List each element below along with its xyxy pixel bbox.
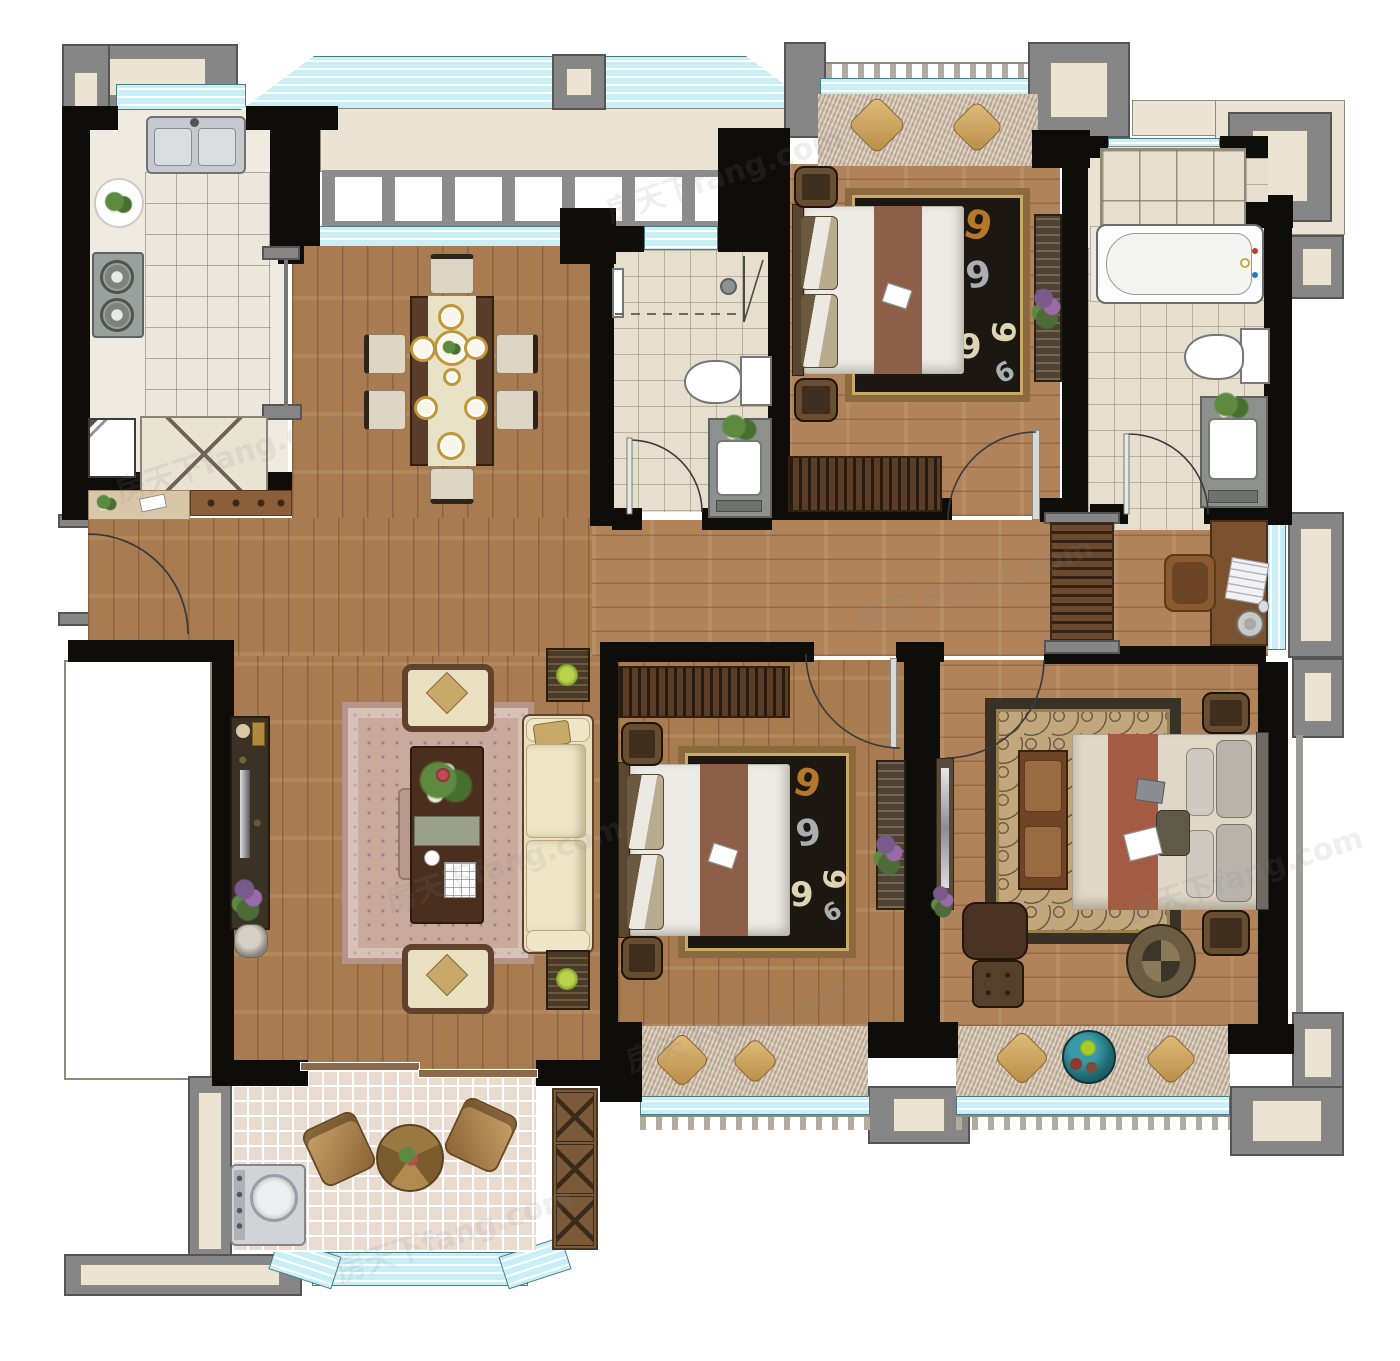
master-pillow-1 (1216, 740, 1252, 818)
wall (68, 640, 234, 662)
master-bed-runner (1108, 734, 1158, 910)
bedroom2-wardrobe (618, 666, 790, 718)
x-cabinet-cell-1 (556, 1092, 594, 1142)
bed2-pillow-bottom (626, 854, 664, 930)
bath2-vanity-basin (1208, 418, 1258, 480)
bed1-nightstand-bottom (794, 378, 838, 422)
wall (600, 1022, 642, 1102)
bath2-toilet-bowl (1184, 334, 1244, 380)
facade-line-master-right (1296, 735, 1303, 1015)
plate (438, 304, 464, 330)
facade-mini-pillar-top-inset (566, 68, 592, 96)
coffee-table-dish (444, 862, 476, 898)
bath1-vanity-plant (720, 412, 760, 444)
master-pillow-2 (1216, 824, 1252, 902)
stove-burner-bottom (100, 298, 134, 332)
refrigerator (140, 416, 268, 492)
wall (1062, 150, 1088, 522)
console-decor-round (236, 724, 250, 738)
wall (896, 642, 944, 662)
closet-side-tile (1246, 158, 1268, 202)
facade-corner-bottom-left-inset (80, 1264, 280, 1286)
kitchen-sink-basin-left (154, 128, 192, 166)
dining-chair-right1 (496, 334, 538, 374)
bed1-door-leaf (1032, 430, 1040, 520)
plate (437, 432, 465, 460)
living-purple-plant (230, 866, 266, 924)
kitchen-pocket-door-cap-top (262, 246, 300, 260)
wall (1228, 1024, 1294, 1054)
rug-swirl: 9 (790, 878, 814, 912)
master-nightstand-top (1202, 692, 1250, 734)
kitchen-pocket-door-cap-bottom (262, 404, 302, 420)
fruit-bowl-apple (1080, 1040, 1096, 1056)
washing-machine-controls (234, 1170, 245, 1240)
bed1-cabinet-flowers (1030, 276, 1064, 332)
master-recliner-ottoman (972, 960, 1024, 1008)
wall (718, 128, 790, 228)
bench-cushion-bottom (1024, 826, 1062, 878)
facade-band-bottom-left-inset (198, 1092, 222, 1250)
exterior-strip-left (64, 660, 212, 1080)
x-cabinet-cell-3 (556, 1196, 594, 1246)
wall (868, 1022, 958, 1058)
bathtub-inner (1106, 233, 1252, 295)
balcony2-dentil (640, 1115, 870, 1130)
bed1-pillow-bottom (800, 294, 838, 368)
sofa-arm-bottom (526, 930, 590, 952)
facade-step-right-bath-inset (1302, 248, 1332, 286)
kitchen-vegetables (104, 188, 134, 218)
balcony3-window (956, 1096, 1230, 1115)
facade-step-master-bottom-inset (1304, 1028, 1332, 1078)
bathroom1-window (644, 226, 718, 250)
salad (442, 338, 462, 358)
hall-cabinet-cap-bottom (1044, 640, 1120, 654)
bath1-toilet-tank (740, 356, 772, 406)
bath1-toilet-bowl (684, 360, 742, 404)
bath1-bench (612, 268, 624, 318)
rug-swirl: 9 (964, 256, 994, 295)
shoe-console-right (190, 490, 292, 516)
bay-window-bottom-center (312, 1252, 528, 1286)
wall (536, 1060, 602, 1086)
wall (600, 660, 618, 1028)
bathtub-tap-cold (1252, 272, 1258, 278)
bed2-pillow-top (626, 774, 664, 850)
mug (1236, 610, 1264, 638)
balcony3-fruit-bowl (1062, 1030, 1116, 1084)
coffee-table-flowers (418, 754, 476, 812)
wall (88, 106, 118, 130)
wall (718, 226, 774, 252)
kitchen-base-cabinet (88, 418, 136, 478)
plate (464, 396, 488, 420)
facade-pillar-balcony1-right-inset (1050, 62, 1108, 118)
bench-cushion-top (1024, 760, 1062, 812)
balcony-table-plant (398, 1146, 420, 1168)
stove-burner-top (100, 260, 134, 294)
side-table-bottom-plate (556, 968, 578, 990)
wall (212, 1060, 308, 1086)
master-pouf (1126, 924, 1196, 998)
laptop (1225, 557, 1270, 605)
bath1-vanity-basin (716, 440, 762, 496)
facade-pillar-between-balconies-inset (893, 1098, 945, 1132)
bath1-vanity-shelf (716, 500, 762, 512)
console-plant (96, 492, 118, 514)
master-notebook (1135, 778, 1166, 804)
bath2-toilet-tank (1240, 328, 1270, 384)
dining-chair-bottom (430, 468, 474, 504)
hall-slatted-cabinet (1050, 522, 1114, 644)
plate (464, 336, 488, 360)
dining-chair-left2 (364, 390, 406, 430)
facade-step-master-top-inset (1304, 672, 1332, 722)
coffee-table-cup (424, 850, 440, 866)
kitchen-window (116, 84, 246, 110)
floor-plan: 9 9 9 9 6 (0, 0, 1400, 1361)
balcony1-window (820, 78, 1036, 95)
master-dresser-flowers (930, 876, 956, 920)
wall (590, 226, 614, 526)
washing-machine-door (250, 1174, 298, 1222)
master-recliner-back (962, 902, 1028, 960)
bay-window-top (238, 56, 822, 112)
dining-chair-top (430, 254, 474, 294)
bathtub-tap-hot (1252, 248, 1258, 254)
sofa-seat-2 (526, 840, 586, 934)
living-stone-decor (234, 924, 268, 958)
balcony2-window (640, 1096, 870, 1115)
tv-screen (240, 770, 250, 858)
study-window (1266, 520, 1286, 650)
kitchen-sink-basin-right (198, 128, 236, 166)
bed2-nightstand-top (621, 722, 663, 766)
bed2-door-leaf (890, 658, 897, 748)
dining-chair-left1 (364, 334, 406, 374)
coffee-table-runner (414, 816, 480, 846)
console-decor-box (252, 722, 265, 746)
wall (612, 226, 644, 252)
facade-trim-study-inset (1300, 528, 1332, 642)
rug-swirl: 9 (794, 814, 824, 853)
bed1-pillow-top (800, 216, 838, 290)
plate (410, 336, 436, 362)
entry-door-frame-bottom (58, 612, 90, 626)
dining-chair-right2 (496, 390, 538, 430)
plate (414, 396, 438, 420)
sofa-seat-1 (526, 744, 586, 838)
foyer-floor (88, 518, 592, 656)
shower-head (720, 278, 737, 295)
balcony-sliding-door-panel2 (418, 1069, 538, 1078)
master-headboard (1256, 732, 1269, 910)
bedroom1-wardrobe (788, 456, 942, 512)
bath2-vanity-shelf (1208, 490, 1258, 503)
fruit-bowl-berries2 (1086, 1062, 1097, 1073)
facade-corner-bottom-right-inset (1252, 1100, 1322, 1142)
bowl (443, 368, 461, 386)
balcony-sliding-door-panel1 (300, 1062, 420, 1071)
balcony1-dentil (826, 62, 1030, 78)
master-nightstand-bottom (1202, 910, 1250, 956)
wall (904, 662, 940, 1024)
side-table-top-plate (556, 664, 578, 686)
kitchen-tiled-area (145, 172, 271, 420)
kitchen-faucet (190, 118, 199, 127)
bed2-nightstand-bottom (621, 936, 663, 980)
fruit-bowl-berries (1070, 1058, 1082, 1070)
bath2-vanity-plant (1212, 390, 1252, 422)
wall (612, 508, 642, 530)
master-dresser-mirror (941, 768, 949, 888)
rug-swirl: 9 (817, 867, 849, 890)
x-cabinet-cell-2 (556, 1144, 594, 1194)
bed1-nightstand-top (794, 166, 838, 208)
balcony1-shag-rug (818, 94, 1038, 166)
bathtub-faucet (1240, 258, 1250, 268)
wall (600, 642, 814, 662)
desk-chair-seat (1172, 562, 1208, 604)
rug-swirl: 9 (986, 320, 1020, 345)
wall (62, 106, 90, 520)
balcony3-dentil (956, 1115, 1230, 1130)
master-pillow-3 (1186, 748, 1214, 816)
kitchen-pocket-door-leaf (284, 260, 288, 406)
facade-panel-top-right (1132, 100, 1218, 136)
bed2-cabinet-flowers (872, 822, 906, 878)
coffee-table-flowers-red (436, 768, 450, 782)
master-pillow-4 (1186, 830, 1214, 898)
mouse (1258, 600, 1269, 613)
